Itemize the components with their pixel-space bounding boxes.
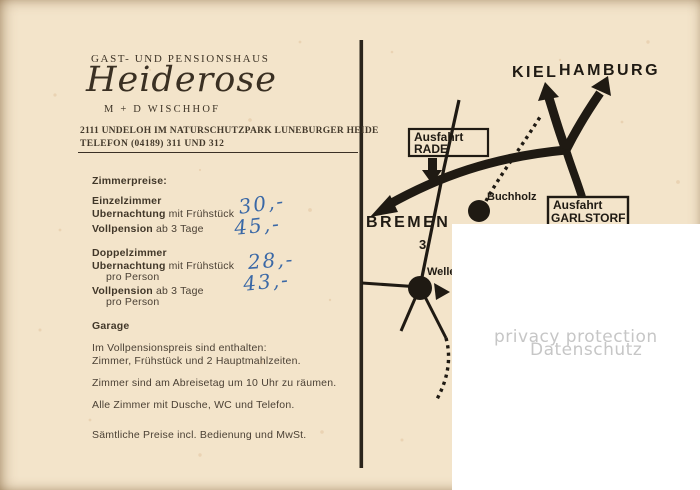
row-label-rest: ab 3 Tage xyxy=(156,223,204,235)
privacy-text-de: Datenschutz xyxy=(530,340,642,360)
note-vat: Sämtliche Preise incl. Bedienung und MwS… xyxy=(92,429,306,441)
row-label-bold: Vollpension xyxy=(92,223,153,235)
privacy-overlay: privacy protection Datenschutz xyxy=(452,224,700,490)
price-list-heading: Zimmerpreise: xyxy=(92,175,167,187)
address-line: 2111 UNDELOH IM NATURSCHUTZPARK LUNEBURG… xyxy=(80,126,379,136)
garage-title: Garage xyxy=(92,320,129,332)
row-label-rest: ab 3 Tage xyxy=(156,285,204,297)
double-room-title: Doppelzimmer xyxy=(92,247,167,259)
row-label-rest: mit Frühstück xyxy=(169,260,235,272)
price-row: Ubernachtungmit Frühstück xyxy=(92,208,234,220)
price-row: Vollpensionab 3 Tage xyxy=(92,223,204,235)
handwritten-price: 45,- xyxy=(233,211,282,240)
row-label-bold: Ubernachtung xyxy=(92,208,166,220)
owners-line: M + D WISCHHOF xyxy=(104,104,220,115)
note-inclusions: Im Vollpensionspreis sind enthalten: Zim… xyxy=(92,342,301,368)
note-line: Zimmer, Frühstück und 2 Hauptmahlzeiten. xyxy=(92,355,301,368)
row-sublabel: pro Person xyxy=(106,271,159,283)
letterhead-rule xyxy=(78,152,358,153)
house-name: Heiderose xyxy=(86,60,277,100)
row-sublabel: pro Person xyxy=(106,296,159,308)
note-amenities: Alle Zimmer mit Dusche, WC und Telefon. xyxy=(92,399,295,411)
phone-line: TELEFON (04189) 311 UND 312 xyxy=(80,139,224,149)
handwritten-price: 43,- xyxy=(242,267,291,296)
row-label-rest: mit Frühstück xyxy=(169,208,235,220)
single-room-title: Einzelzimmer xyxy=(92,195,162,207)
scanned-price-card: Ausfahrt RADE Ausfahrt GARLSTORF KIEL HA… xyxy=(0,0,700,490)
note-checkout: Zimmer sind am Abreisetag um 10 Uhr zu r… xyxy=(92,377,336,389)
note-line: Im Vollpensionspreis sind enthalten: xyxy=(92,342,301,355)
